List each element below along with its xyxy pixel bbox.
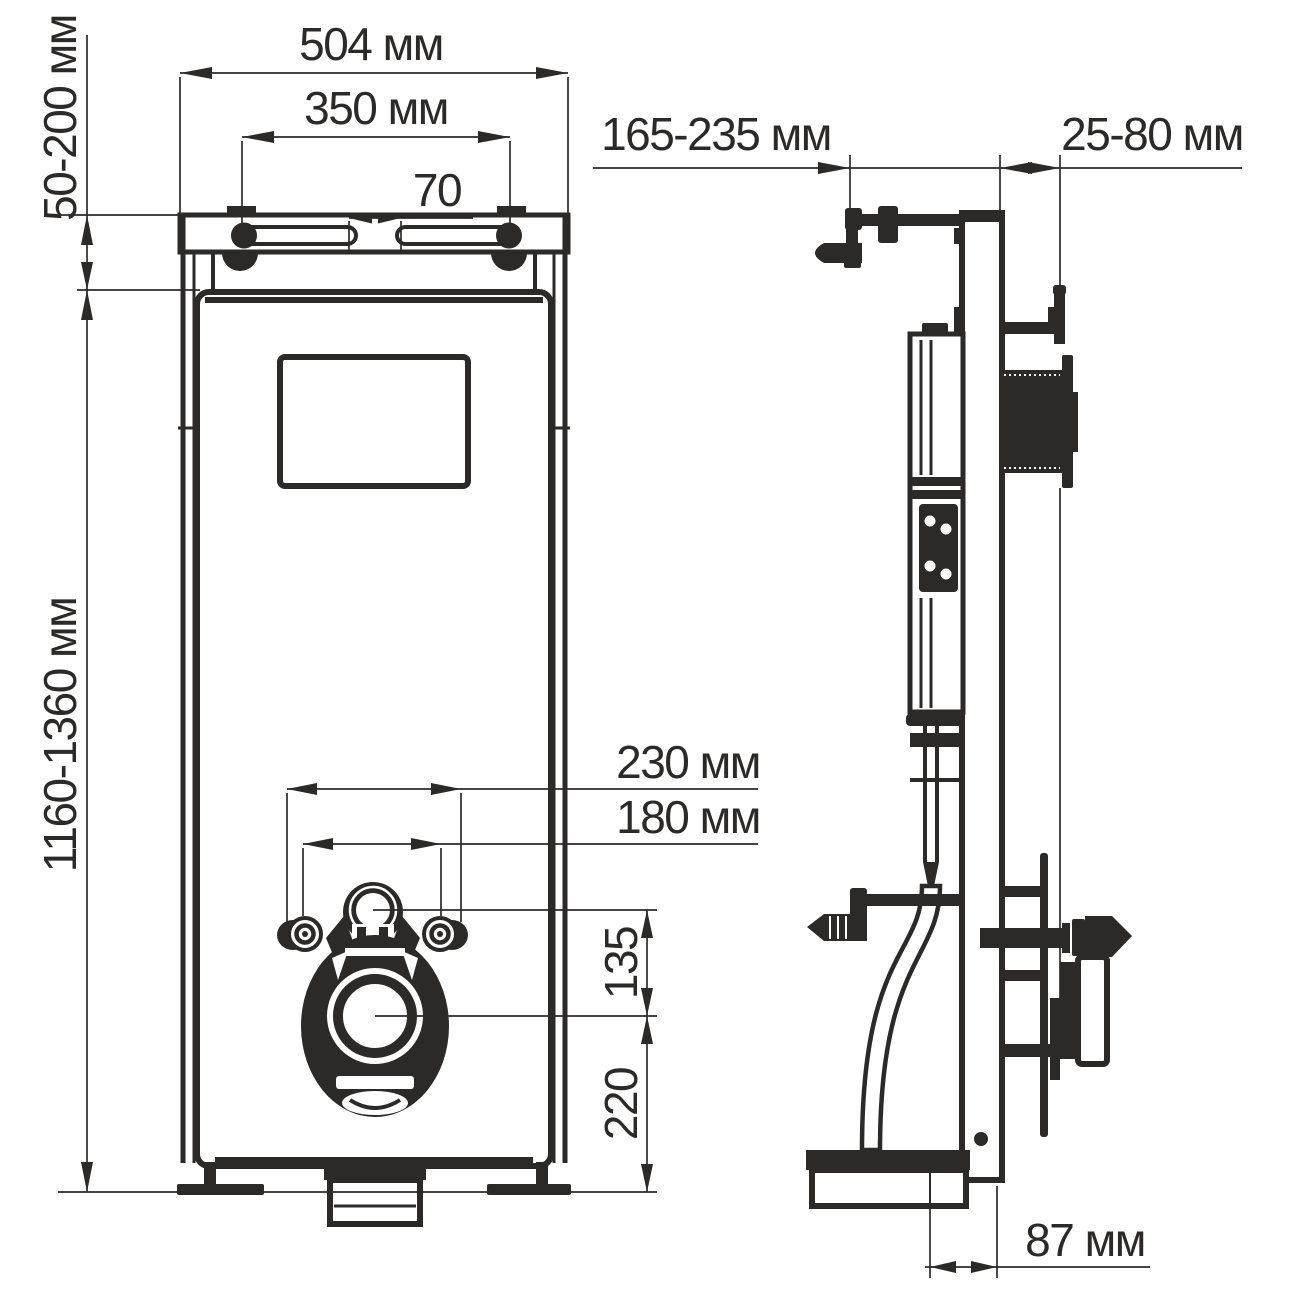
dim-label-slot-spacing: 350 мм	[304, 82, 448, 134]
tank-fastener-plate	[919, 504, 958, 592]
technical-drawing-page: 504 мм 350 мм 70 50-200 мм	[0, 0, 1300, 1300]
front-view	[58, 206, 657, 1224]
dim-slot-spacing: 350 мм	[242, 82, 510, 224]
dim-label-outlet-height: 220	[595, 1068, 647, 1140]
installation-frame-drawing: 504 мм 350 мм 70 50-200 мм	[0, 0, 1300, 1300]
bolt-collar-left	[222, 253, 258, 271]
dim-frame-height: 1160-1360 мм	[34, 290, 93, 1192]
bolt-collar-right	[491, 253, 527, 271]
dim-top-clearance: 50-200 мм	[34, 15, 200, 290]
dim-label-frame-height: 1160-1360 мм	[34, 598, 86, 873]
adjustment-hole	[974, 1132, 988, 1146]
dim-label-front-depth: 165-235 мм	[601, 108, 831, 160]
dim-label-outlet-offset: 135	[595, 927, 647, 999]
dim-depth-and-wall-offset: 165-235 мм 25-80 мм	[593, 108, 1243, 293]
cistern-tank-side	[906, 323, 963, 726]
side-view	[806, 206, 1132, 1206]
wall-bracket-upper	[1002, 285, 1066, 344]
dim-label-foot-offset: 87 мм	[1025, 1214, 1145, 1266]
inspection-window	[280, 357, 468, 486]
dim-label-outer-fixing: 230 мм	[616, 736, 760, 788]
wall-bracket-lower	[1002, 998, 1060, 1080]
drain-connector	[324, 1166, 426, 1224]
dim-label-slot-gap: 70	[413, 164, 461, 216]
dim-label-top-width: 504 мм	[299, 18, 443, 70]
foot-block-side	[806, 1150, 970, 1206]
top-tab-right	[497, 206, 526, 216]
flush-housing-block	[1002, 355, 1078, 488]
mounting-bolt-right	[496, 223, 522, 249]
dim-label-bolt-spacing: 180 мм	[616, 791, 760, 843]
water-inlet-valve	[815, 206, 964, 268]
mounting-bolt-left	[231, 223, 257, 249]
dim-label-wall-offset: 25-80 мм	[1061, 108, 1243, 160]
flush-pipe-side	[862, 726, 965, 1150]
dim-label-top-clearance: 50-200 мм	[34, 15, 86, 221]
